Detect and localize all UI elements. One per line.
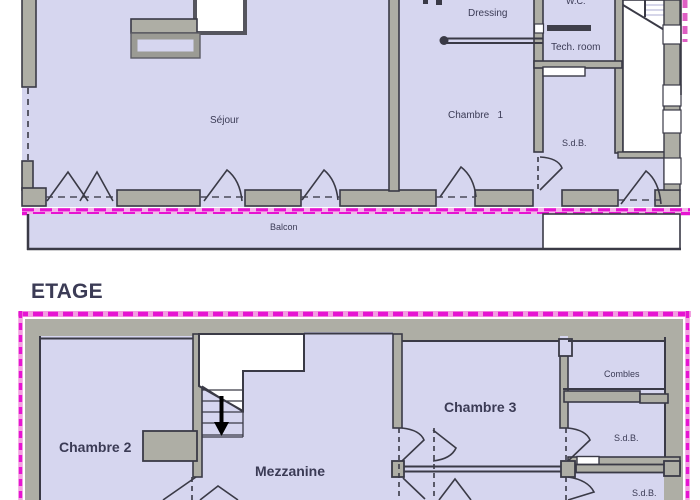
svg-text:Balcon: Balcon (270, 222, 298, 232)
svg-text:Dressing: Dressing (468, 8, 507, 19)
svg-text:Mezzanine: Mezzanine (255, 463, 325, 479)
svg-text:S.d.B.: S.d.B. (614, 433, 639, 443)
svg-text:Chambre 3: Chambre 3 (444, 399, 517, 415)
svg-text:Chambre 1: Chambre 1 (448, 110, 503, 121)
svg-text:W.C.: W.C. (566, 0, 586, 6)
svg-text:Séjour: Séjour (210, 115, 240, 126)
svg-text:Combles: Combles (604, 369, 640, 379)
svg-text:ETAGE: ETAGE (31, 280, 103, 303)
svg-text:Tech. room: Tech. room (551, 42, 600, 53)
svg-text:S.d.B.: S.d.B. (562, 138, 587, 148)
svg-text:Chambre 2: Chambre 2 (59, 439, 132, 455)
svg-text:S.d.B.: S.d.B. (632, 488, 657, 498)
